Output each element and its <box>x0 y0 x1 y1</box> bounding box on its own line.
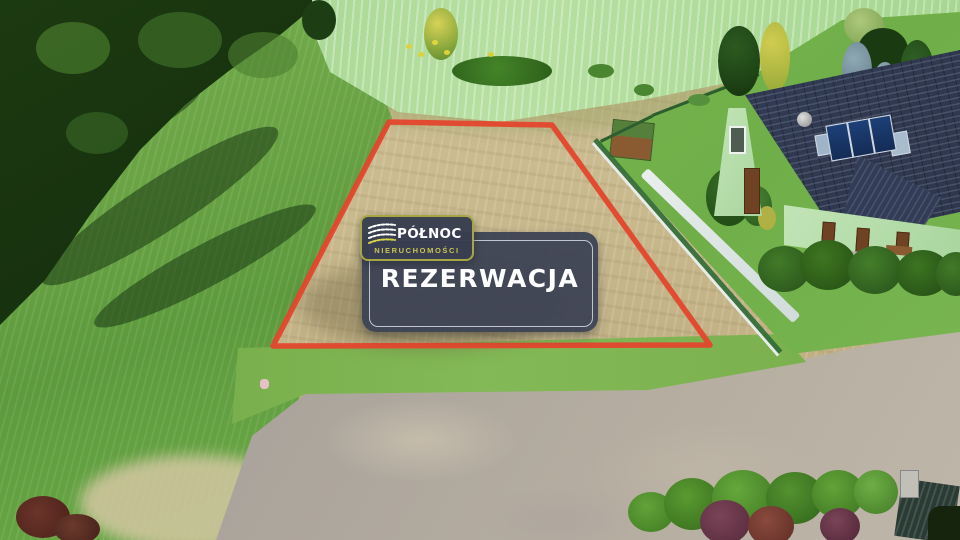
logo-row: PÓŁNOC <box>367 222 467 246</box>
aerial-photo: REZERWACJA PÓŁNOC NIERUCHOMOŚCI <box>0 0 960 540</box>
logo-subtitle: NIERUCHOMOŚCI <box>367 246 467 255</box>
reservation-label: REZERWACJA <box>362 264 598 293</box>
logo-company-name: PÓŁNOC <box>397 226 462 242</box>
polnoc-logo-icon <box>367 222 397 246</box>
agency-logo-plate: PÓŁNOC NIERUCHOMOŚCI <box>360 215 474 261</box>
